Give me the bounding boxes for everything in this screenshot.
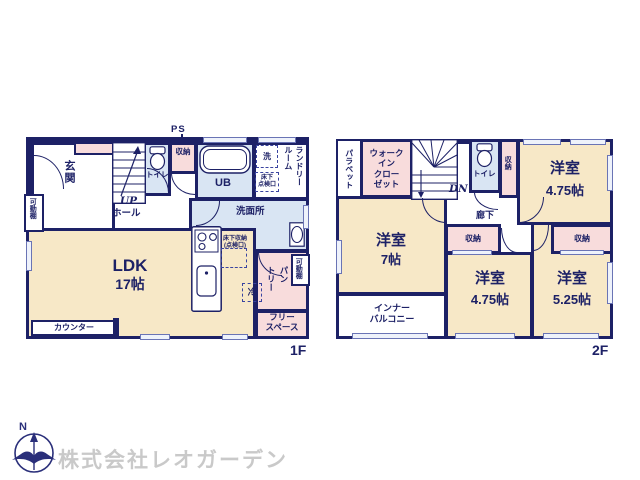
underfloor-storage-label: 床下収納 (点検口) (219, 236, 251, 250)
ps-label: PS (171, 124, 186, 135)
room-b-size: 7帖 (362, 252, 420, 267)
ps-pointer (181, 134, 183, 142)
company-watermark: 株式会社レオガーデン (58, 444, 288, 474)
toilet-label-2f: トイレ (473, 170, 496, 179)
stairs-up-label: UP (120, 195, 137, 207)
bathtub-icon (199, 145, 251, 174)
ldk-size-label: 17帖 (99, 276, 161, 293)
bath-label: UB (215, 177, 231, 190)
wic-label: ウォーク イン クロー ゼット (362, 142, 411, 195)
pantry-label: パン トリー (268, 266, 290, 312)
compass-icon (10, 424, 58, 480)
counter-label: カウンター (33, 322, 115, 334)
washer-label: 洗 (256, 145, 278, 168)
room-c-size: 4.75帖 (455, 292, 525, 307)
room-d-label: 洋室 (537, 270, 607, 288)
room-b-label: 洋室 (362, 232, 420, 250)
free-space-label: フリー スペース (259, 312, 305, 332)
toilet-label-1f: トイレ (146, 171, 169, 180)
window (140, 334, 170, 340)
window (352, 333, 428, 339)
ldk-label: LDK (99, 256, 161, 276)
room-a-size: 4.75帖 (530, 183, 600, 198)
parapet-label: パラペット (340, 146, 358, 192)
washroom-label: 洗面所 (236, 206, 265, 217)
room-c-label: 洋室 (455, 270, 525, 288)
window (203, 137, 247, 143)
compass-north-label: N (19, 421, 27, 434)
window (303, 205, 309, 229)
window (455, 333, 515, 339)
window (258, 137, 296, 143)
window (607, 155, 613, 191)
genkan-closet (74, 142, 115, 155)
underfloor-storage-box (221, 248, 247, 268)
window (222, 334, 248, 340)
window (523, 139, 561, 145)
genkan-label: 玄関 (62, 160, 75, 184)
closet-right-door (560, 250, 604, 255)
closet-mid-door (452, 250, 492, 255)
underfloor-hatch-label: 床下 点検口 (255, 172, 279, 192)
closet-mid-label: 収納 (447, 228, 499, 250)
closet-label-1f: 収納 (169, 148, 197, 157)
window (543, 333, 599, 339)
balcony-label: インナー バルコニー (352, 303, 432, 324)
toilet-icon-1f (148, 146, 167, 170)
floor-label-2f: 2F (592, 342, 608, 358)
movable-shelf-left-label: 可動棚 (28, 198, 36, 219)
closet-top-label: 収納 (503, 156, 511, 170)
stairs-dn-label: DN (449, 183, 468, 195)
floor-label-1f: 1F (290, 342, 306, 358)
closet-right-label: 収納 (553, 228, 611, 250)
window (607, 262, 613, 304)
window (570, 139, 606, 145)
toilet-icon-2f (475, 143, 494, 167)
kitchen-icon (191, 226, 222, 312)
hallway-label: 廊下 (476, 210, 494, 221)
hall-label: ホール (112, 208, 141, 219)
fridge-label: 冷 (242, 283, 262, 302)
laundry-label: ランドリー ルーム (281, 146, 305, 198)
room-a-label: 洋室 (530, 160, 600, 178)
movable-shelf-right-label: 可動棚 (294, 258, 302, 279)
window (336, 240, 342, 274)
floorplan-canvas: 洗 床下 点検口 床下収納 (点検口) 冷 PS 玄関 可動棚 トイレ 収納 U… (0, 0, 640, 480)
room-d-size: 5.25帖 (537, 292, 607, 307)
window (26, 241, 32, 271)
